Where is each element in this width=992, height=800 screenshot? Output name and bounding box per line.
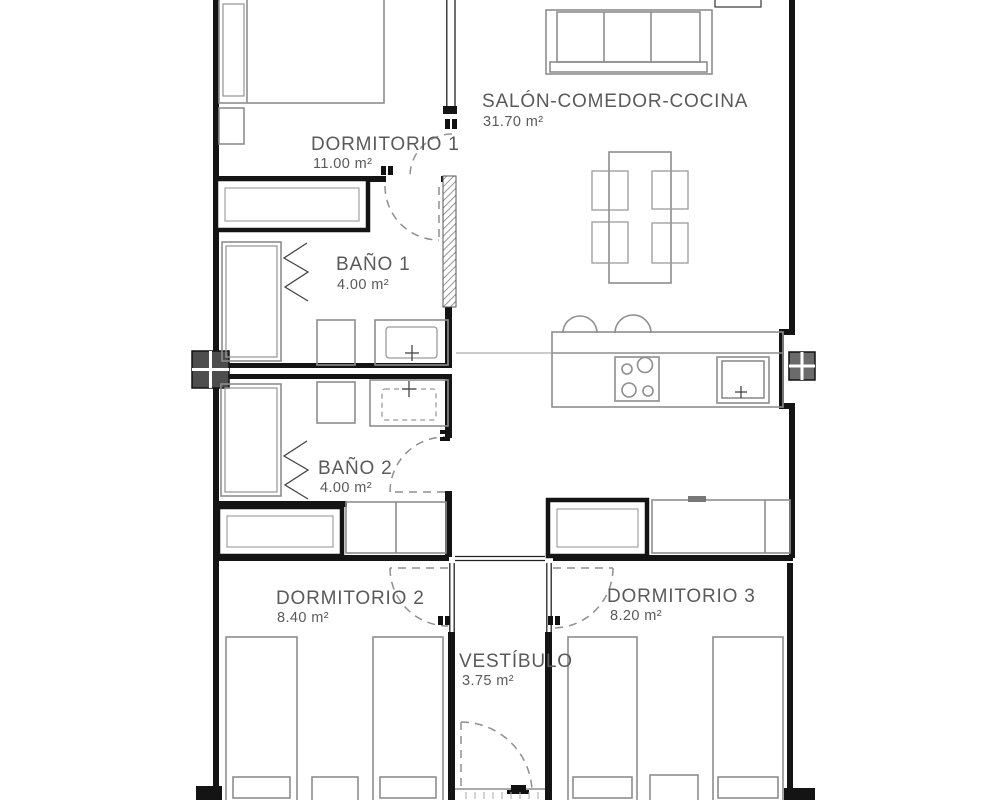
door-jamb-glyphs <box>381 119 560 625</box>
pillow <box>380 777 436 798</box>
folding-shower-screen <box>284 243 308 301</box>
bano-1-fixtures <box>222 242 448 365</box>
closet-salon <box>548 500 647 556</box>
washbasin <box>370 380 448 426</box>
area-bano-1: 4.00 m² <box>337 277 389 293</box>
beds-dormitorio-3 <box>568 637 783 800</box>
label-salon-comedor-cocina: SALÓN-COMEDOR-COCINA <box>482 90 748 112</box>
toilet <box>317 320 355 365</box>
area-bano-2: 4.00 m² <box>320 480 372 496</box>
area-vestibulo: 3.75 m² <box>462 673 514 689</box>
floor-plan: DORMITORIO 1 11.00 m² SALÓN-COMEDOR-COCI… <box>0 0 992 800</box>
hob <box>615 357 659 401</box>
chair <box>592 171 628 210</box>
bar-stool <box>563 316 597 333</box>
label-bano-1: BAÑO 1 <box>336 253 411 275</box>
toilet <box>317 382 355 423</box>
pillar-right <box>789 352 815 380</box>
area-dormitorio-3: 8.20 m² <box>610 608 662 624</box>
label-dormitorio-1: DORMITORIO 1 <box>311 134 460 155</box>
door-bano-1 <box>385 186 439 240</box>
label-vestibulo: VESTÍBULO <box>459 651 573 672</box>
door-dormitorio-3 <box>553 568 613 628</box>
hatched-partition-wall <box>443 176 456 307</box>
cabinet-appliance-mark <box>688 496 706 502</box>
area-dormitorio-1: 11.00 m² <box>313 156 372 172</box>
wardrobe-dormitorio-1 <box>216 179 368 230</box>
entry-door <box>455 722 545 799</box>
label-dormitorio-3: DORMITORIO 3 <box>607 586 756 607</box>
side-table <box>715 0 761 7</box>
kitchen-cabinet-run <box>652 496 790 553</box>
pillow <box>223 4 244 96</box>
closet-hall <box>346 502 446 553</box>
shower-tray <box>222 242 281 361</box>
floor-plan-drawing: DORMITORIO 1 11.00 m² SALÓN-COMEDOR-COCI… <box>0 0 992 800</box>
pillow <box>573 777 632 798</box>
door-bano-2 <box>390 437 445 492</box>
label-dormitorio-2: DORMITORIO 2 <box>276 588 425 609</box>
single-bed <box>713 637 783 800</box>
dorm1-window <box>443 0 457 114</box>
area-salon-comedor-cocina: 31.70 m² <box>483 114 543 130</box>
chair <box>652 223 688 263</box>
area-dormitorio-2: 8.40 m² <box>277 610 329 626</box>
doors <box>381 119 613 799</box>
pillow <box>233 777 290 798</box>
nightstand <box>650 775 698 800</box>
wardrobe-dormitorio-2 <box>218 507 342 556</box>
cased-openings <box>450 557 551 633</box>
pillow <box>718 777 778 798</box>
double-bed-dormitorio-1 <box>219 0 384 103</box>
nightstand-dormitorio-1 <box>219 108 244 144</box>
single-bed <box>568 637 637 800</box>
single-bed <box>373 637 443 800</box>
sofa <box>546 10 712 74</box>
shower-tray <box>221 384 281 496</box>
dining-table-set <box>592 152 688 283</box>
chair <box>592 222 628 263</box>
kitchen-sink <box>717 357 769 403</box>
single-bed <box>226 637 297 800</box>
folding-shower-screen <box>284 441 308 499</box>
pillar-left <box>192 351 229 388</box>
kitchen-counter <box>552 315 783 407</box>
nightstand <box>312 777 358 800</box>
washbasin <box>375 320 448 365</box>
bar-stool <box>615 315 651 333</box>
label-bano-2: BAÑO 2 <box>318 457 393 479</box>
chair <box>652 171 688 209</box>
beds-dormitorio-2 <box>226 637 443 800</box>
